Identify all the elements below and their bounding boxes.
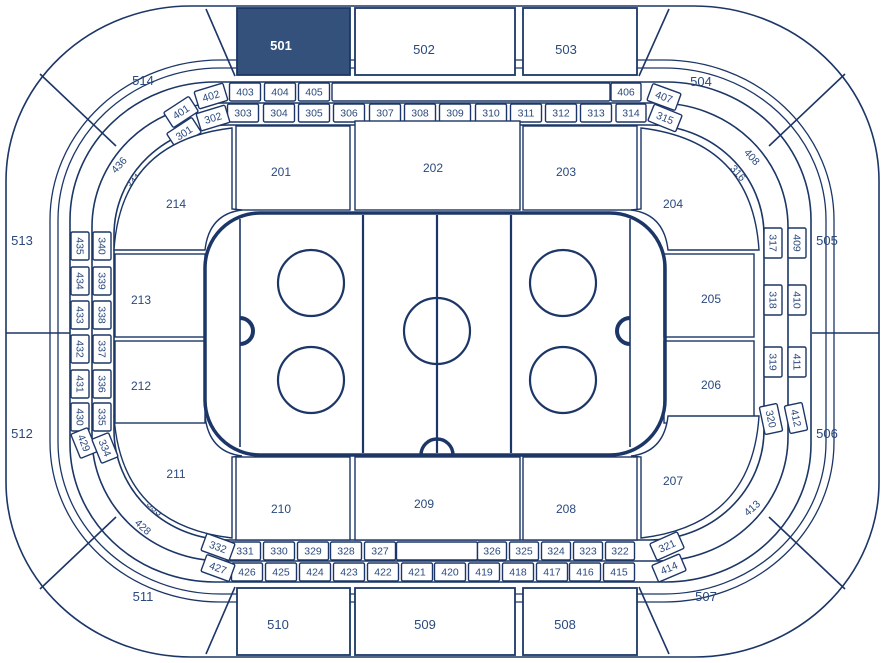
section-403[interactable]: 403 <box>230 83 261 101</box>
section-326[interactable]: 326 <box>478 542 507 560</box>
section-503[interactable]: 503 <box>523 8 637 75</box>
section-label: 425 <box>272 567 290 579</box>
section-416[interactable]: 416 <box>570 563 601 581</box>
section-label: 426 <box>238 567 256 579</box>
section-label: 508 <box>554 617 576 632</box>
section-label: 322 <box>611 546 629 558</box>
section-201[interactable]: 201 <box>236 126 350 210</box>
section-label: 330 <box>270 546 288 558</box>
section-label: 312 <box>552 108 570 120</box>
section-label: 205 <box>701 292 721 306</box>
section-label: 501 <box>270 38 292 53</box>
section-label: 431 <box>73 375 85 393</box>
section-419[interactable]: 419 <box>469 563 500 581</box>
section-label: 510 <box>267 617 289 632</box>
section-214[interactable]: 214 <box>114 128 242 250</box>
section-303[interactable]: 303 <box>228 104 259 122</box>
section-label: 512 <box>11 426 33 441</box>
section-428[interactable]: 428 <box>132 517 153 538</box>
section-label: 335 <box>95 408 107 426</box>
rink-boards <box>205 213 665 455</box>
section-308[interactable]: 308 <box>405 104 436 122</box>
section-divider <box>639 9 669 76</box>
section-404[interactable]: 404 <box>265 83 296 101</box>
section-label: 409 <box>790 234 802 252</box>
section-label: 406 <box>617 87 635 99</box>
section-divider <box>639 587 669 654</box>
section-418[interactable]: 418 <box>503 563 534 581</box>
section-label: 436 <box>109 155 130 176</box>
section-label: 408 <box>741 147 762 168</box>
section-label: 336 <box>95 375 107 393</box>
section-label: 507 <box>695 589 717 604</box>
section-label: 319 <box>766 353 778 371</box>
section-405[interactable]: 405 <box>299 83 330 101</box>
section-label: 434 <box>73 272 85 290</box>
section-label: 337 <box>95 340 107 358</box>
section-313[interactable]: 313 <box>581 104 612 122</box>
seating-map-page: 4034044054063033043053063073083093103113… <box>0 0 885 663</box>
section-label: 420 <box>441 567 459 579</box>
section-label: 214 <box>166 197 186 211</box>
section-433[interactable]: 433 <box>71 301 89 329</box>
section-211[interactable]: 211 <box>114 416 242 538</box>
section-label: 423 <box>340 567 358 579</box>
section-label: 513 <box>11 233 33 248</box>
section-label: 435 <box>73 237 85 255</box>
section-207[interactable]: 207 <box>631 416 759 538</box>
section-507[interactable]: 507 <box>695 589 717 604</box>
section-label: 502 <box>413 42 435 57</box>
section-319[interactable]: 319 <box>764 347 782 377</box>
section-206[interactable]: 206 <box>664 341 754 423</box>
section-label: 424 <box>306 567 324 579</box>
section-330[interactable]: 330 <box>264 542 295 560</box>
section-409[interactable]: 409 <box>788 228 806 258</box>
hockey-rink <box>205 213 665 455</box>
section-label: 210 <box>271 502 291 516</box>
faceoff-circle <box>278 347 344 413</box>
section-label: 511 <box>133 589 154 604</box>
section-406[interactable]: 406 <box>611 83 641 101</box>
section-421[interactable]: 421 <box>402 563 433 581</box>
section-label: 421 <box>408 567 426 579</box>
section-335[interactable]: 335 <box>93 403 111 431</box>
section-202[interactable]: 202 <box>355 121 520 210</box>
section-label: 314 <box>622 108 640 120</box>
section-label: 404 <box>271 87 289 99</box>
section-label: 416 <box>576 567 594 579</box>
section-label: 329 <box>304 546 322 558</box>
section-label: 317 <box>766 234 778 252</box>
section-label: 503 <box>555 42 577 57</box>
section-509[interactable]: 509 <box>355 588 515 655</box>
section-435[interactable]: 435 <box>71 232 89 260</box>
goal-crease <box>240 318 253 344</box>
section-label: 303 <box>234 108 252 120</box>
section-327[interactable]: 327 <box>365 542 396 560</box>
section-338[interactable]: 338 <box>93 301 111 329</box>
section-501[interactable]: 501 <box>237 8 350 75</box>
section-label: 340 <box>95 237 107 255</box>
section-311[interactable]: 311 <box>511 104 542 122</box>
section-label: 428 <box>132 517 153 538</box>
unlabeled-band-box[interactable] <box>397 542 478 560</box>
section-314[interactable]: 314 <box>616 104 646 122</box>
section-425[interactable]: 425 <box>266 563 297 581</box>
section-label: 505 <box>816 233 838 248</box>
section-336[interactable]: 336 <box>93 370 111 398</box>
section-513[interactable]: 513 <box>11 233 33 248</box>
section-432[interactable]: 432 <box>71 335 89 363</box>
section-430[interactable]: 430 <box>71 403 89 431</box>
section-511[interactable]: 511 <box>133 589 154 604</box>
section-label: 325 <box>515 546 533 558</box>
section-415[interactable]: 415 <box>604 563 635 581</box>
section-514[interactable]: 514 <box>132 73 154 88</box>
section-label: 405 <box>305 87 323 99</box>
section-407[interactable]: 407 <box>647 83 681 110</box>
section-label: 419 <box>475 567 493 579</box>
section-320[interactable]: 320 <box>759 403 782 434</box>
section-label: 410 <box>790 291 802 309</box>
section-label: 514 <box>132 73 154 88</box>
section-label: 208 <box>556 502 576 516</box>
section-label: 506 <box>816 426 838 441</box>
section-label: 306 <box>340 108 358 120</box>
section-431[interactable]: 431 <box>71 370 89 398</box>
section-label: 415 <box>610 567 628 579</box>
section-434[interactable]: 434 <box>71 267 89 295</box>
section-309[interactable]: 309 <box>440 104 471 122</box>
section-label: 411 <box>790 354 802 371</box>
section-337[interactable]: 337 <box>93 335 111 363</box>
section-label: 324 <box>547 546 565 558</box>
section-label: 338 <box>95 306 107 324</box>
section-divider <box>206 587 235 654</box>
section-422[interactable]: 422 <box>368 563 399 581</box>
section-label: 307 <box>376 108 394 120</box>
section-340[interactable]: 340 <box>93 232 111 260</box>
section-410[interactable]: 410 <box>788 285 806 315</box>
faceoff-circle <box>530 250 596 316</box>
section-label: 311 <box>518 108 535 120</box>
section-212[interactable]: 212 <box>115 341 205 423</box>
arena-seating-map: 4034044054063033043053063073083093103113… <box>0 0 885 663</box>
section-label: 327 <box>371 546 389 558</box>
section-306[interactable]: 306 <box>334 104 365 122</box>
section-305[interactable]: 305 <box>299 104 330 122</box>
section-label: 403 <box>236 87 254 99</box>
section-label: 433 <box>73 306 85 324</box>
section-505[interactable]: 505 <box>816 233 838 248</box>
section-324[interactable]: 324 <box>542 542 571 560</box>
section-label: 313 <box>587 108 605 120</box>
section-label: 310 <box>482 108 500 120</box>
section-315[interactable]: 315 <box>648 104 683 132</box>
section-213[interactable]: 213 <box>115 254 205 337</box>
section-label: 209 <box>414 497 434 511</box>
section-208[interactable]: 208 <box>523 457 637 540</box>
section-504[interactable]: 504 <box>690 74 712 89</box>
faceoff-circle <box>530 347 596 413</box>
section-label: 203 <box>556 165 576 179</box>
section-label: 202 <box>423 161 443 175</box>
section-label: 309 <box>446 108 464 120</box>
section-label: 339 <box>95 272 107 290</box>
section-divider <box>40 74 116 146</box>
section-label: 212 <box>131 379 151 393</box>
section-508[interactable]: 508 <box>523 588 637 655</box>
goal-crease <box>617 318 630 344</box>
unlabeled-band-box[interactable] <box>332 83 610 101</box>
section-label: 326 <box>483 546 501 558</box>
section-label: 201 <box>271 165 291 179</box>
section-510[interactable]: 510 <box>237 588 350 655</box>
section-label: 509 <box>414 617 436 632</box>
section-424[interactable]: 424 <box>300 563 331 581</box>
section-417[interactable]: 417 <box>537 563 568 581</box>
section-label: 206 <box>701 378 721 392</box>
section-label: 418 <box>509 567 527 579</box>
section-label: 211 <box>166 467 185 481</box>
section-label: 430 <box>73 408 85 426</box>
section-310[interactable]: 310 <box>476 104 507 122</box>
section-312[interactable]: 312 <box>546 104 577 122</box>
section-328[interactable]: 328 <box>331 542 362 560</box>
section-420[interactable]: 420 <box>435 563 466 581</box>
section-304[interactable]: 304 <box>264 104 295 122</box>
section-512[interactable]: 512 <box>11 426 33 441</box>
section-307[interactable]: 307 <box>370 104 401 122</box>
section-436[interactable]: 436 <box>109 155 130 176</box>
section-205[interactable]: 205 <box>664 254 754 337</box>
section-411[interactable]: 411 <box>788 347 806 377</box>
section-label: 318 <box>766 291 778 309</box>
section-210[interactable]: 210 <box>236 457 350 540</box>
section-label: 422 <box>374 567 392 579</box>
section-329[interactable]: 329 <box>298 542 329 560</box>
section-408[interactable]: 408 <box>741 147 762 168</box>
section-318[interactable]: 318 <box>764 285 782 315</box>
section-506[interactable]: 506 <box>816 426 838 441</box>
section-209[interactable]: 209 <box>355 457 520 540</box>
section-426[interactable]: 426 <box>232 563 263 581</box>
faceoff-circle <box>278 250 344 316</box>
section-413[interactable]: 413 <box>742 498 763 519</box>
section-label: 331 <box>236 546 254 558</box>
section-203[interactable]: 203 <box>523 126 637 210</box>
section-label: 504 <box>690 74 712 89</box>
section-divider <box>40 517 116 589</box>
section-label: 328 <box>337 546 355 558</box>
section-label: 207 <box>663 474 683 488</box>
section-339[interactable]: 339 <box>93 267 111 295</box>
section-label: 305 <box>305 108 323 120</box>
section-label: 304 <box>270 108 288 120</box>
section-323[interactable]: 323 <box>574 542 603 560</box>
section-423[interactable]: 423 <box>334 563 365 581</box>
section-label: 323 <box>579 546 597 558</box>
section-label: 213 <box>131 293 151 307</box>
section-322[interactable]: 322 <box>606 542 635 560</box>
section-label: 308 <box>411 108 429 120</box>
section-label: 204 <box>663 197 683 211</box>
section-325[interactable]: 325 <box>510 542 539 560</box>
section-label: 413 <box>742 498 763 519</box>
section-317[interactable]: 317 <box>764 228 782 258</box>
section-divider <box>206 9 235 76</box>
section-label: 417 <box>543 567 561 579</box>
section-label: 432 <box>73 340 85 358</box>
section-502[interactable]: 502 <box>355 8 515 75</box>
